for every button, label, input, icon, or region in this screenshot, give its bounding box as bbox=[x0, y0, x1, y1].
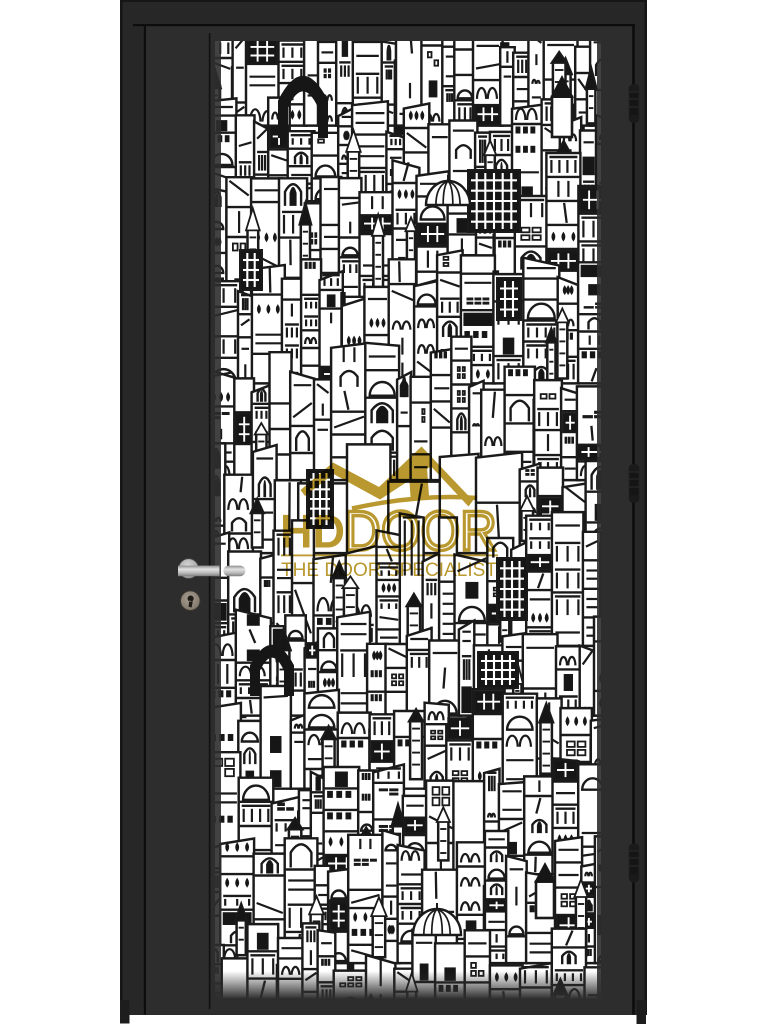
svg-text:HD: HD bbox=[280, 505, 345, 558]
svg-text:DOOR: DOOR bbox=[344, 499, 497, 562]
svg-text:THE DOOR SPECIALIST: THE DOOR SPECIALIST bbox=[281, 559, 497, 581]
